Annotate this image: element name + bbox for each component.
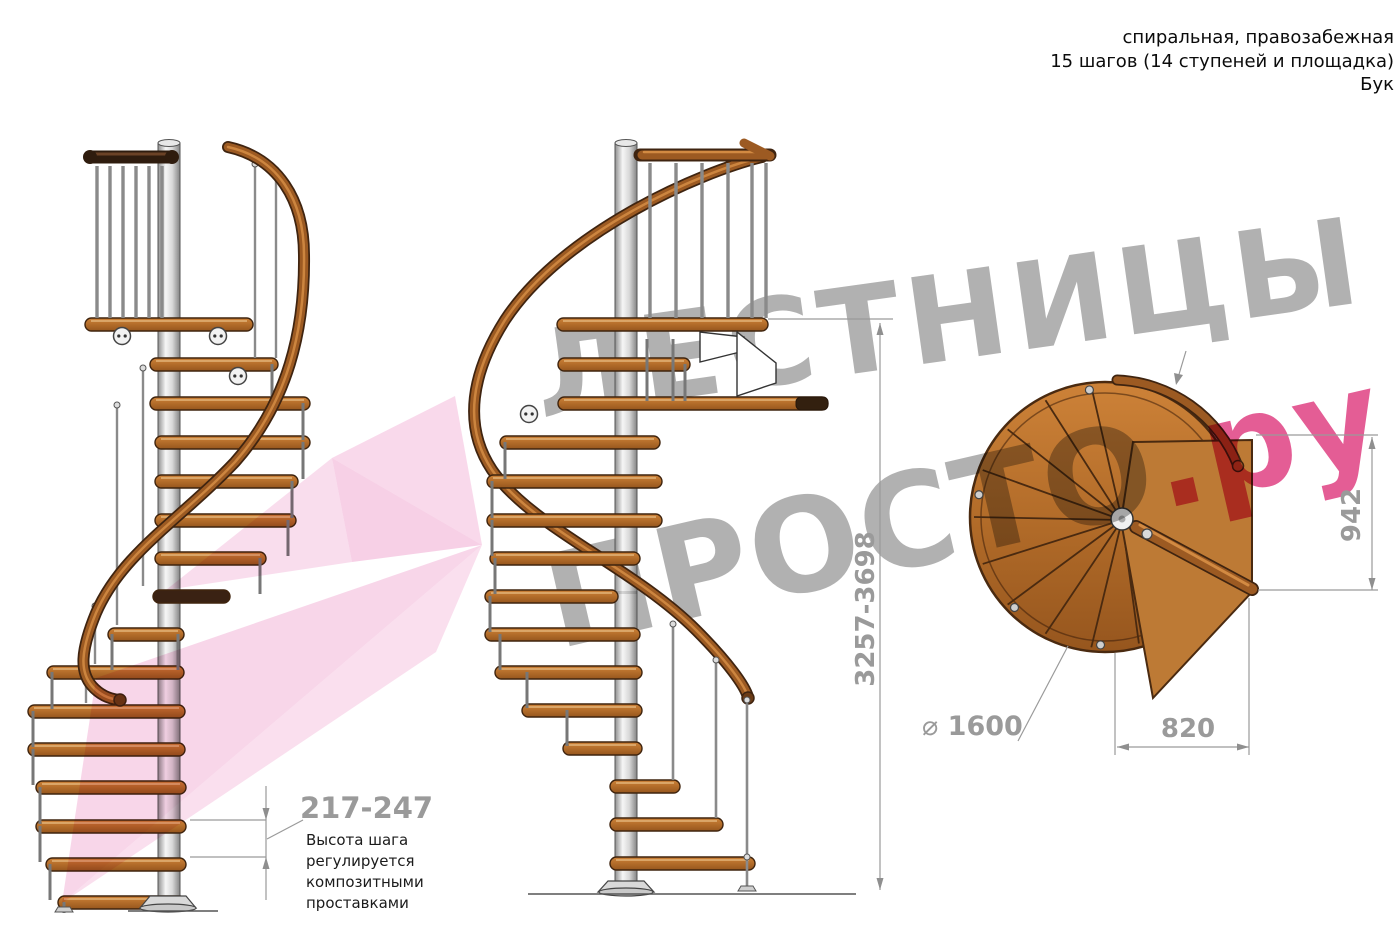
title-block: спиральная, правозабежная 15 шагов (14 с… <box>1050 26 1394 97</box>
step-count-label: 15 шагов (14 ступеней и площадка) <box>1050 50 1394 74</box>
material-label: Бук <box>1050 73 1394 97</box>
note-line: проставками <box>306 893 424 914</box>
note-line: композитными <box>306 872 424 893</box>
stair-type-label: спиральная, правозабежная <box>1050 26 1394 50</box>
dimension-total-height: 3257-3698 <box>851 529 881 689</box>
dimension-step-height: 217-247 <box>300 791 433 825</box>
dimension-942: 942 <box>1337 475 1367 555</box>
drawing-canvas: ЛЕСТНИЦЫ ПРОСТО.ру спиральная, правозабе… <box>0 0 1400 939</box>
step-height-note: Высота шага регулируется композитными пр… <box>306 830 424 914</box>
dimension-diameter: ⌀ 1600 <box>922 711 1023 742</box>
dimension-lines <box>0 0 1400 939</box>
note-line: регулируется <box>306 851 424 872</box>
diameter-value: 1600 <box>948 711 1023 742</box>
dimension-820: 820 <box>1138 714 1238 744</box>
diameter-icon: ⌀ <box>922 711 938 742</box>
note-line: Высота шага <box>306 830 424 851</box>
